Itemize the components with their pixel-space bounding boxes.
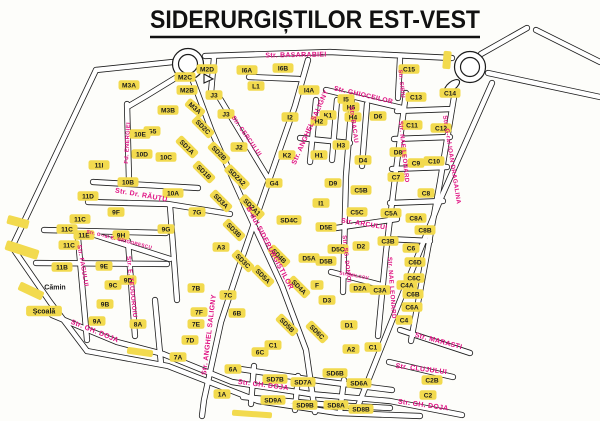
block-label: 11C xyxy=(61,226,73,233)
block-label: A3 xyxy=(217,244,226,251)
map-canvas: SIDERURGIȘTILOR EST-VEST M3AM2DM2CM2BM3A… xyxy=(0,0,600,421)
block-m3a: M3A xyxy=(119,80,140,90)
block-label: 11B xyxy=(56,264,68,271)
block-10b: 10B xyxy=(118,177,139,187)
block-sd1b: SD1B xyxy=(192,160,216,184)
block-sd6b: SD6B xyxy=(323,368,348,378)
block-label: C6D xyxy=(408,259,421,266)
block-g4: G4 xyxy=(266,178,283,188)
block-label: M2C xyxy=(178,74,192,81)
block-label: C11 xyxy=(406,122,418,129)
block-label: 11D xyxy=(82,193,94,200)
block-label: C6 xyxy=(407,245,416,252)
block-label: H1 xyxy=(315,152,324,159)
block-label: SD8A xyxy=(327,402,345,409)
block-label: 9E xyxy=(100,263,109,270)
block-label: 7G xyxy=(193,209,202,216)
block-label: C6A xyxy=(405,304,418,311)
block-label: C15 xyxy=(403,66,415,73)
block-label: 6B xyxy=(233,310,242,317)
block-c2: C2 xyxy=(420,390,437,400)
block-d5e: D5E xyxy=(316,222,337,232)
block-sd1a: SD1A xyxy=(175,135,199,159)
block-9b: 9B xyxy=(97,299,114,309)
block-label: M3A xyxy=(122,82,136,89)
block-label: C8A xyxy=(409,215,422,222)
block-c13: C13 xyxy=(406,92,427,102)
block-label: 11C xyxy=(63,242,75,249)
place-cămin: Cămin xyxy=(44,284,65,291)
block-label: 6A xyxy=(229,366,238,373)
block-label: 7B xyxy=(192,285,201,292)
block-label: J2 xyxy=(235,144,243,151)
block-c10: C10 xyxy=(424,156,445,166)
block-sd8b: SD8B xyxy=(349,404,374,414)
block-label: 7C xyxy=(224,292,233,299)
block-label: H3 xyxy=(337,142,346,149)
block-a2: A2 xyxy=(343,344,360,354)
block-label: 6C xyxy=(256,349,265,356)
block-label: D5E xyxy=(320,224,333,231)
block-label: C3B xyxy=(381,238,394,245)
block-7c: 7C xyxy=(220,290,237,300)
block-c6b: C6B xyxy=(403,289,424,299)
block-a3: A3 xyxy=(213,242,230,252)
block-label: C5B xyxy=(354,187,367,194)
block-9a: 9A xyxy=(89,316,106,326)
street-label: Str. CLUJULUI xyxy=(395,363,447,376)
block-9f: 9F xyxy=(108,207,125,217)
building-strip xyxy=(442,51,452,70)
block-label: J3 xyxy=(222,111,230,118)
block-label: 10E xyxy=(134,131,146,138)
map-title-group: SIDERURGIȘTILOR EST-VEST xyxy=(150,6,480,37)
street-label: Str. BASARABIEI xyxy=(265,51,326,59)
block-label: K2 xyxy=(283,152,292,159)
block-c4: C4 xyxy=(396,315,413,325)
block-h1: H1 xyxy=(311,150,328,160)
block-6b: 6B xyxy=(229,308,246,318)
block-c6d: C6D xyxy=(405,257,426,267)
block-label: SD8B xyxy=(352,406,370,413)
block-d2: D2 xyxy=(353,241,370,251)
building-strip xyxy=(232,410,272,419)
block-7g: 7G xyxy=(189,207,206,217)
block-sd6a: SD6A xyxy=(347,378,372,388)
block-label: A2 xyxy=(347,346,356,353)
block-label: 10B xyxy=(122,179,134,186)
street-label: Str. MARASTI xyxy=(414,332,463,351)
block-label: M3B xyxy=(161,107,175,114)
block-label: C1 xyxy=(369,344,378,351)
block-label: 7D xyxy=(186,337,195,344)
block-7f: 7F xyxy=(191,307,208,317)
block-label: C7 xyxy=(392,174,401,181)
block-label: C2 xyxy=(424,392,433,399)
block-label: 11I xyxy=(95,162,104,169)
block-label: D4 xyxy=(359,157,368,164)
block-i6a: I6A xyxy=(237,65,258,75)
block-label: C3A xyxy=(373,287,386,294)
block-c8a: C8A xyxy=(406,213,427,223)
block-label: I4A xyxy=(304,87,314,94)
block-label: D2A xyxy=(353,285,366,292)
block-label: C8 xyxy=(422,190,431,197)
block-7b: 7B xyxy=(188,283,205,293)
block-label: 9C xyxy=(109,282,118,289)
block-label: D9 xyxy=(329,180,338,187)
block-label: M2B xyxy=(180,87,194,94)
block-label: SD6A xyxy=(350,380,368,387)
block-label: 10C xyxy=(160,154,172,161)
block-label: I2 xyxy=(287,114,293,121)
block-11i: 11I xyxy=(89,160,110,170)
block-label: C5C xyxy=(350,209,363,216)
block-m2b: M2B xyxy=(177,85,198,95)
block-9e: 9E xyxy=(96,261,113,271)
block-c5b: C5B xyxy=(351,185,372,195)
block-d9: D9 xyxy=(325,178,342,188)
block-i4a: I4A xyxy=(299,85,320,95)
block-label: J3 xyxy=(210,92,218,99)
block-label: 10D xyxy=(136,151,148,158)
block-label: C8B xyxy=(418,227,431,234)
block-m2d: M2D xyxy=(197,64,218,74)
block-m2c: M2C xyxy=(175,72,196,82)
block-10d: 10D xyxy=(132,149,153,159)
block-10e: 10E xyxy=(130,129,151,139)
block-i2: I2 xyxy=(282,112,299,122)
place-label: Cămin xyxy=(44,284,65,291)
block-c4a: C4A xyxy=(397,280,418,290)
block-label: I6A xyxy=(242,67,252,74)
block-sd8a: SD8A xyxy=(324,400,349,410)
block-label: SD9A xyxy=(264,397,282,404)
block-c3b: C3B xyxy=(378,236,399,246)
block-c3a: C3A xyxy=(370,285,391,295)
block-sd6c: SD6C xyxy=(305,320,329,344)
block-8a: 8A xyxy=(130,319,147,329)
block-10c: 10C xyxy=(156,152,177,162)
block-label: 9F xyxy=(112,209,120,216)
block-label: G4 xyxy=(270,180,279,187)
block-1a: 1A xyxy=(214,389,231,399)
block-h3: H3 xyxy=(333,140,350,150)
block-label: C2B xyxy=(425,377,438,384)
block-label: SD4C xyxy=(280,217,298,224)
block-label: D2 xyxy=(357,243,366,250)
block-d3: D3 xyxy=(319,295,336,305)
block-label: D3 xyxy=(323,297,332,304)
block-label: L1 xyxy=(252,83,260,90)
block-d4: D4 xyxy=(355,155,372,165)
block-label: C14 xyxy=(444,90,456,97)
block-j3: J3 xyxy=(206,90,223,100)
block-7e: 7E xyxy=(188,319,205,329)
block-label: 8A xyxy=(134,321,143,328)
block-label: 11C xyxy=(74,216,86,223)
roundabout xyxy=(455,52,486,83)
block-11d: 11D xyxy=(78,191,99,201)
block-i1: I1 xyxy=(313,198,330,208)
block-6c: 6C xyxy=(252,347,269,357)
block-sd9b: SD9B xyxy=(293,400,318,410)
place-școală: Școală xyxy=(26,306,62,316)
block-label: 7A xyxy=(174,354,183,361)
block-d1: D1 xyxy=(341,320,358,330)
block-label: C9 xyxy=(412,160,421,167)
block-7d: 7D xyxy=(182,335,199,345)
block-c9: C9 xyxy=(408,158,425,168)
block-label: 10A xyxy=(167,190,179,197)
block-sd9a: SD9A xyxy=(261,395,286,405)
block-label: SD7A xyxy=(294,379,312,386)
block-c6: C6 xyxy=(403,243,420,253)
block-6a: 6A xyxy=(225,364,242,374)
block-label: C13 xyxy=(410,94,422,101)
block-label: 9B xyxy=(101,301,110,308)
block-c5c: C5C xyxy=(347,207,368,217)
block-label: D6 xyxy=(374,113,383,120)
place-label: Școală xyxy=(33,308,56,315)
block-f: F xyxy=(311,280,324,290)
block-label: 9G xyxy=(162,226,171,233)
block-c6a: C6A xyxy=(402,302,423,312)
block-label: C6B xyxy=(406,291,419,298)
block-label: 1A xyxy=(218,391,227,398)
block-d2a: D2A xyxy=(350,283,371,293)
block-i6b: I6B xyxy=(273,63,294,73)
map-title: SIDERURGIȘTILOR EST-VEST xyxy=(150,6,480,34)
block-11c: 11C xyxy=(70,214,91,224)
block-c7: C7 xyxy=(388,172,405,182)
block-c14: C14 xyxy=(440,88,461,98)
block-d5b: D5B xyxy=(316,256,337,266)
block-j2: J2 xyxy=(231,142,248,152)
block-c8: C8 xyxy=(418,188,435,198)
block-label: D5A xyxy=(302,255,315,262)
map-page: SIDERURGIȘTILOR EST-VEST M3AM2DM2CM2BM3A… xyxy=(0,0,600,421)
block-9c: 9C xyxy=(105,280,122,290)
block-9g: 9G xyxy=(158,224,175,234)
block-m3b: M3B xyxy=(158,105,179,115)
block-label: D5B xyxy=(319,258,332,265)
block-label: C1 xyxy=(269,342,278,349)
block-label: D1 xyxy=(345,322,354,329)
block-label: M2D xyxy=(200,66,214,73)
block-label: 7F xyxy=(195,309,203,316)
block-c1: C1 xyxy=(365,342,382,352)
block-label: C4 xyxy=(400,317,409,324)
block-label: C10 xyxy=(428,158,440,165)
block-c8b: C8B xyxy=(415,225,436,235)
block-11b: 11B xyxy=(52,262,73,272)
block-c5a: C5A xyxy=(381,208,402,218)
block-c2b: C2B xyxy=(422,375,443,385)
block-label: I6B xyxy=(278,65,288,72)
block-label: I1 xyxy=(318,200,324,207)
block-sd7a: SD7A xyxy=(291,377,316,387)
block-label: SD6B xyxy=(326,370,344,377)
block-d6: D6 xyxy=(370,111,387,121)
block-label: F xyxy=(315,282,319,289)
block-label: C4A xyxy=(400,282,413,289)
block-sd4c: SD4C xyxy=(277,215,302,225)
block-label: SD9B xyxy=(296,402,314,409)
block-label: 7E xyxy=(192,321,201,328)
block-label: C5A xyxy=(384,210,397,217)
block-sd3b: SD3B xyxy=(222,218,246,242)
block-7a: 7A xyxy=(170,352,187,362)
block-label: 9A xyxy=(93,318,102,325)
block-l1: L1 xyxy=(248,81,265,91)
